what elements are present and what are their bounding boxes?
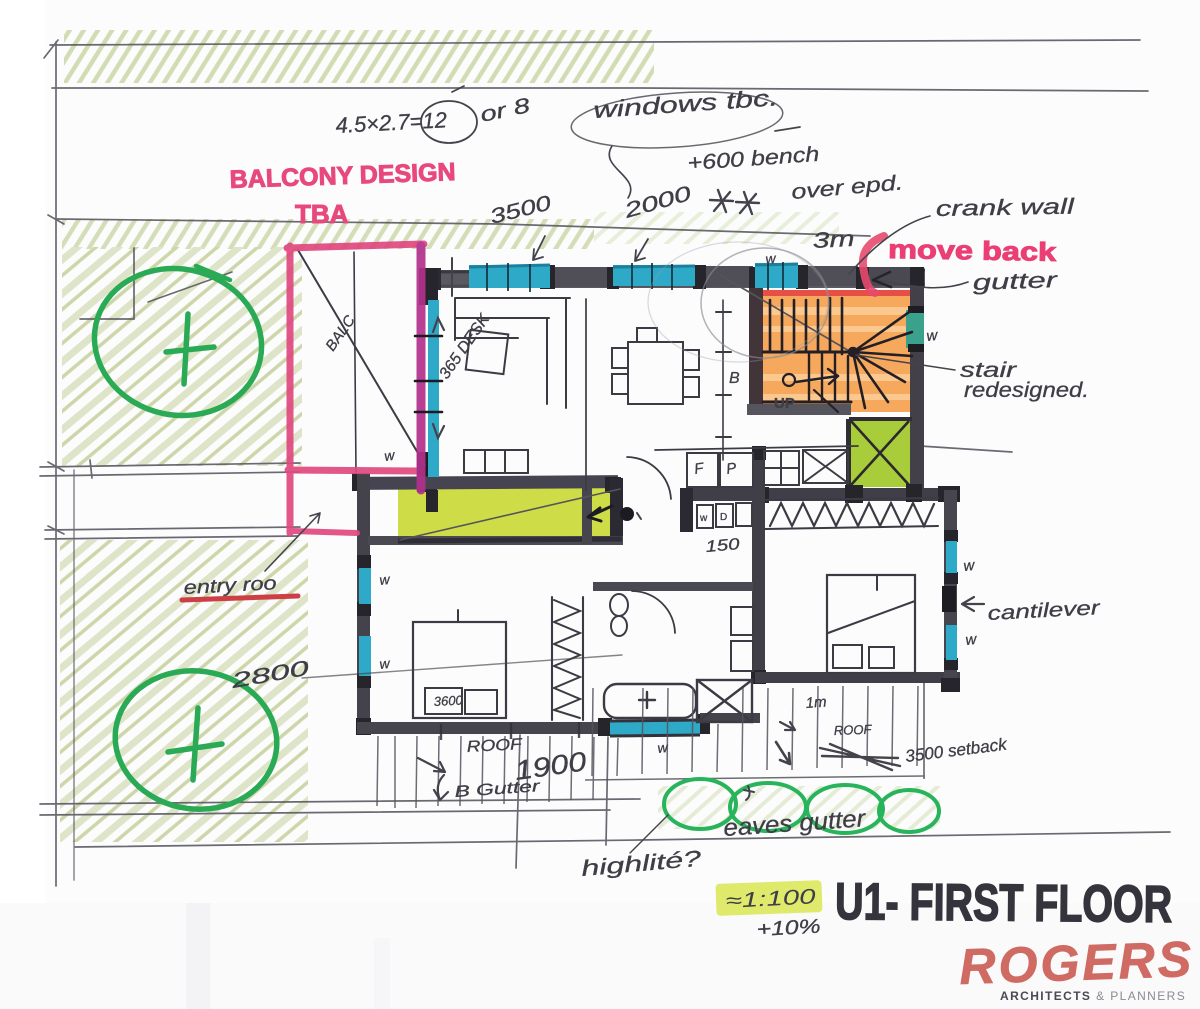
svg-text:redesigned.: redesigned. — [964, 379, 1089, 402]
svg-text:TBA: TBA — [295, 199, 349, 229]
svg-text:D: D — [720, 512, 727, 523]
svg-text:w: w — [699, 513, 708, 524]
svg-text:UP: UP — [774, 395, 795, 412]
svg-text:3m: 3m — [812, 226, 855, 253]
svg-text:gutter: gutter — [972, 267, 1059, 295]
svg-text:ROGERS: ROGERS — [958, 931, 1195, 995]
svg-text:U1- FIRST FLOOR: U1- FIRST FLOOR — [835, 873, 1172, 934]
svg-text:ROOF: ROOF — [834, 722, 873, 738]
svg-text:3600: 3600 — [433, 692, 463, 709]
svg-text:ARCHITECTS & PLANNERS: ARCHITECTS & PLANNERS — [1000, 989, 1186, 1003]
svg-text:≈1:100: ≈1:100 — [725, 885, 817, 913]
svg-text:move back: move back — [888, 234, 1057, 267]
svg-text:1m: 1m — [805, 694, 827, 712]
svg-text:B: B — [729, 370, 740, 387]
svg-text:crank wall: crank wall — [936, 194, 1076, 221]
svg-text:ROOF: ROOF — [466, 736, 523, 756]
svg-text:150: 150 — [705, 536, 740, 556]
svg-text:+10%: +10% — [756, 916, 821, 941]
